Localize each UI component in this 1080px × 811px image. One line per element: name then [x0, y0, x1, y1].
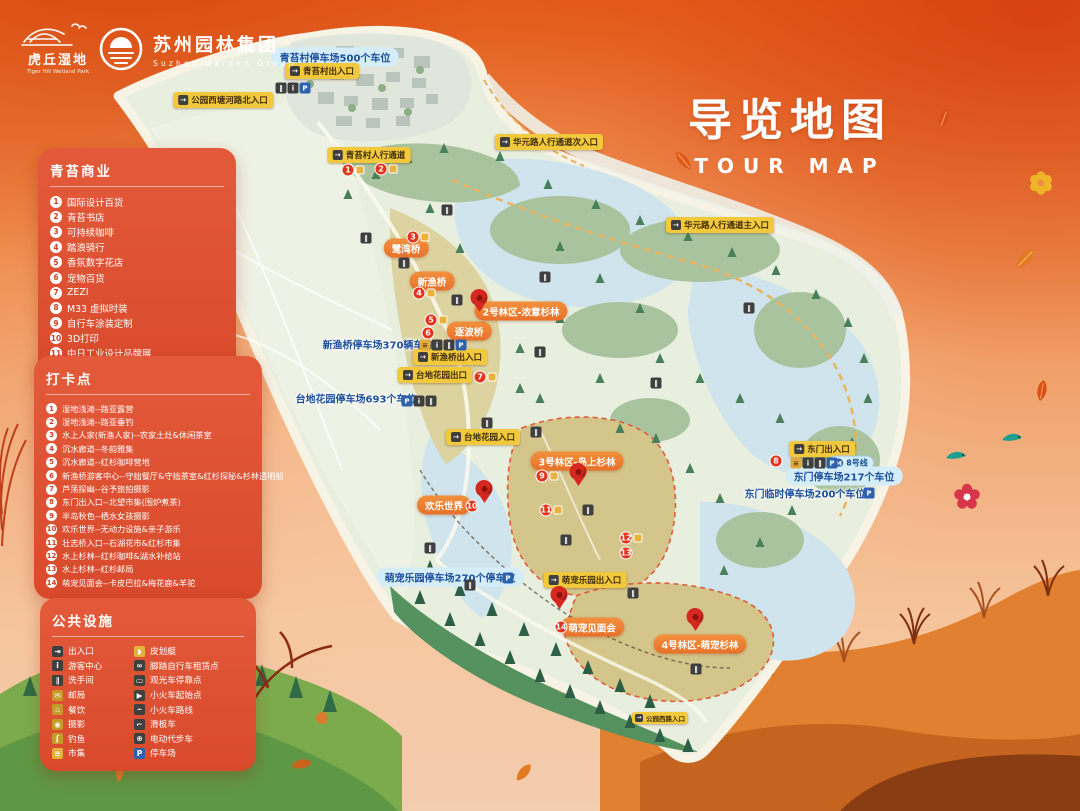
divider: [50, 186, 224, 187]
facility-item: ▶小火车起始点: [134, 688, 219, 703]
item-number-badge: 10: [50, 332, 62, 344]
checkin-list-item: 13水上杉林--红杉邮局: [46, 563, 250, 576]
facility-item: ∥洗手间: [52, 673, 126, 688]
facility-label: 摄影: [68, 718, 85, 730]
facility-label: 电动代步车: [150, 733, 193, 745]
train-route-icon: ┅: [134, 704, 145, 715]
checkin-list-item: 2湿地浅滩--路亚垂钓: [46, 415, 250, 428]
facilities-panel: 公共设施 ⇥出入口i游客中心∥洗手间✉邮局♨餐饮◉摄影ʃ钓鱼≡市集 ◗皮划艇∞脚…: [40, 598, 256, 771]
group-logo-name: 苏州园林集团: [153, 31, 296, 57]
shop-list-item: 103D打印: [50, 331, 224, 346]
shop-list-item: 1国际设计百货: [50, 194, 224, 209]
checkin-spots-panel: 打卡点 1湿地浅滩--路亚露营2湿地浅滩--路亚垂钓3水上人家(新渔人家)--农…: [34, 356, 262, 599]
facility-item: ⇥出入口: [52, 644, 126, 659]
facility-label: 钓鱼: [68, 733, 85, 745]
item-label: 水上人家(新渔人家)--农家土灶&休闲茶室: [62, 429, 212, 441]
item-number-badge: 7: [50, 287, 62, 299]
checkins-panel-title: 打卡点: [46, 368, 250, 388]
checkin-list-item: 9半岛秋色--栖水女孩摄影: [46, 509, 250, 522]
scooter-icon: ⌐: [134, 719, 145, 730]
shops-list: 1国际设计百货2青苔书店3可持续咖啡4踏浪骑行5香氛数字花店6宠物百货7ZEZI…: [50, 194, 224, 376]
checkin-list-item: 8东门出入口--北望市集(围炉煮茶): [46, 496, 250, 509]
parking-icon: P: [134, 748, 145, 759]
shop-list-item: 9自行车涂装定制: [50, 316, 224, 331]
item-label: 芦荡探幽--谷予旅拍摄影: [62, 483, 150, 495]
sightseeing-bus-stop-icon: ▭: [134, 675, 145, 686]
item-label: 壮志桥入口--石湖花市&红杉市集: [62, 537, 181, 549]
checkins-list: 1湿地浅滩--路亚露营2湿地浅滩--路亚垂钓3水上人家(新渔人家)--农家土灶&…: [46, 402, 250, 589]
item-label: M33 虚拟时装: [67, 301, 128, 315]
item-number-badge: 2: [50, 211, 62, 223]
facility-item: ◗皮划艇: [134, 644, 219, 659]
facility-label: 停车场: [150, 747, 176, 759]
dining-icon: ♨: [52, 704, 63, 715]
facility-label: 邮局: [68, 689, 85, 701]
item-number-badge: 5: [46, 457, 57, 468]
item-label: 宠物百货: [67, 271, 105, 285]
shop-list-item: 7ZEZI: [50, 285, 224, 300]
facility-item: ʃ钓鱼: [52, 732, 126, 747]
item-number-badge: 4: [46, 443, 57, 454]
item-label: 沉水廊道--冬韵雅集: [62, 443, 133, 455]
facility-label: 小火车起始点: [150, 689, 202, 701]
facility-item: ⊕电动代步车: [134, 732, 219, 747]
item-label: 湿地浅滩--路亚露营: [62, 403, 133, 415]
island-forest-zone: [508, 417, 676, 597]
checkin-list-item: 11壮志桥入口--石湖花市&红杉市集: [46, 536, 250, 549]
mobility-cart-icon: ⊕: [134, 733, 145, 744]
title-chinese: 导览地图: [652, 84, 928, 148]
market-icon: ≡: [52, 748, 63, 759]
item-label: 香氛数字花店: [67, 255, 123, 269]
item-number-badge: 1: [50, 196, 62, 208]
facilities-panel-title: 公共设施: [52, 610, 244, 630]
divider: [46, 394, 250, 395]
item-number-badge: 14: [46, 577, 57, 588]
item-number-badge: 5: [50, 256, 62, 268]
photography-icon: ◉: [52, 719, 63, 730]
facility-label: 洗手间: [68, 674, 94, 686]
group-logo-subtitle: Suzhou Garden Group: [153, 59, 296, 68]
item-label: 水上杉林--红杉咖啡&湖水补给站: [62, 550, 181, 562]
item-number-badge: 3: [50, 226, 62, 238]
page-title: 导览地图 TOUR MAP: [652, 84, 928, 178]
checkin-list-item: 14萌宠见面会--卡皮巴拉&梅花鹿&羊驼: [46, 576, 250, 589]
title-english: TOUR MAP: [652, 154, 928, 178]
facility-item: ⌐滑板车: [134, 717, 219, 732]
item-label: 国际设计百货: [67, 195, 123, 209]
facility-item: ┅小火车路线: [134, 702, 219, 717]
item-label: 可持续咖啡: [67, 225, 114, 239]
shop-list-item: 4踏浪骑行: [50, 240, 224, 255]
facility-item: P停车场: [134, 746, 219, 761]
post-office-icon: ✉: [52, 690, 63, 701]
checkin-list-item: 1湿地浅滩--路亚露营: [46, 402, 250, 415]
visitor-center-icon: i: [52, 660, 63, 671]
park-logo-subtitle: Tiger Hill Wetland Park: [20, 69, 96, 75]
shop-list-item: 2青苔书店: [50, 209, 224, 224]
park-logo-name: 虎丘湿地: [20, 49, 96, 68]
item-number-badge: 1: [46, 403, 57, 414]
item-label: 半岛秋色--栖水女孩摄影: [62, 510, 150, 522]
checkin-list-item: 10欢乐世界--无动力设施&亲子游乐: [46, 523, 250, 536]
entrance-icon: ⇥: [52, 646, 63, 657]
item-label: 3D打印: [67, 331, 99, 345]
item-label: 欢乐世界--无动力设施&亲子游乐: [62, 523, 181, 535]
item-number-badge: 12: [46, 550, 57, 561]
item-number-badge: 8: [50, 302, 62, 314]
item-number-badge: 6: [46, 470, 57, 481]
item-label: 青苔书店: [67, 210, 105, 224]
item-number-badge: 4: [50, 241, 62, 253]
item-number-badge: 2: [46, 417, 57, 428]
checkin-list-item: 3水上人家(新渔人家)--农家土灶&休闲茶室: [46, 429, 250, 442]
facility-label: 小火车路线: [150, 704, 193, 716]
checkin-list-item: 12水上杉林--红杉咖啡&湖水补给站: [46, 549, 250, 562]
shop-list-item: 8M33 虚拟时装: [50, 300, 224, 315]
item-number-badge: 11: [46, 537, 57, 548]
item-label: ZEZI: [67, 287, 89, 298]
facilities-list-right: ◗皮划艇∞脚踏自行车租赁点▭观光车停靠点▶小火车起始点┅小火车路线⌐滑板车⊕电动…: [134, 644, 219, 761]
facility-label: 脚踏自行车租赁点: [150, 660, 219, 672]
shop-list-item: 6宠物百货: [50, 270, 224, 285]
shops-legend-panel: 青苔商业 1国际设计百货2青苔书店3可持续咖啡4踏浪骑行5香氛数字花店6宠物百货…: [38, 148, 236, 386]
facility-item: ♨餐饮: [52, 702, 126, 717]
divider: [52, 636, 244, 637]
checkin-list-item: 7芦荡探幽--谷予旅拍摄影: [46, 482, 250, 495]
facility-label: 观光车停靠点: [150, 674, 202, 686]
checkin-list-item: 4沉水廊道--冬韵雅集: [46, 442, 250, 455]
item-number-badge: 3: [46, 430, 57, 441]
item-number-badge: 7: [46, 484, 57, 495]
item-label: 湿地浅滩--路亚垂钓: [62, 416, 133, 428]
restroom-icon: ∥: [52, 675, 63, 686]
item-number-badge: 10: [46, 524, 57, 535]
checkin-list-item: 5沉水廊道--红杉咖啡营地: [46, 456, 250, 469]
fishing-icon: ʃ: [52, 733, 63, 744]
shops-panel-title: 青苔商业: [50, 160, 224, 180]
facility-label: 游客中心: [68, 660, 102, 672]
kayak-icon: ◗: [134, 646, 145, 657]
facility-label: 市集: [68, 747, 85, 759]
facility-label: 餐饮: [68, 704, 85, 716]
facility-item: ≡市集: [52, 746, 126, 761]
item-label: 东门出入口--北望市集(围炉煮茶): [62, 496, 181, 508]
item-number-badge: 6: [50, 272, 62, 284]
item-number-badge: 9: [46, 510, 57, 521]
facility-item: ✉邮局: [52, 688, 126, 703]
facility-label: 皮划艇: [150, 645, 176, 657]
item-label: 水上杉林--红杉邮局: [62, 563, 133, 575]
item-number-badge: 13: [46, 564, 57, 575]
tour-map-poster: N 青苔村停车场500个车位→青苔村出入口→公园西塘河路北入口→青苔村人行通道→…: [0, 0, 1080, 811]
item-label: 新渔桥游客中心--守拙餐厅&守拙茶室&红杉探秘&杉林透明船: [62, 470, 284, 482]
park-logo: 虎丘湿地 Tiger Hill Wetland Park: [20, 18, 96, 75]
facility-item: i游客中心: [52, 659, 126, 674]
facility-item: ▭观光车停靠点: [134, 673, 219, 688]
item-label: 踏浪骑行: [67, 240, 105, 254]
item-number-badge: 9: [50, 317, 62, 329]
facility-label: 出入口: [68, 645, 94, 657]
park-logo-art-icon: [20, 18, 90, 48]
facilities-list-left: ⇥出入口i游客中心∥洗手间✉邮局♨餐饮◉摄影ʃ钓鱼≡市集: [52, 644, 126, 761]
facility-label: 滑板车: [150, 718, 176, 730]
group-logo: 苏州园林集团 Suzhou Garden Group: [98, 26, 296, 72]
group-logo-icon: [98, 26, 144, 72]
shop-list-item: 5香氛数字花店: [50, 255, 224, 270]
checkin-list-item: 6新渔桥游客中心--守拙餐厅&守拙茶室&红杉探秘&杉林透明船: [46, 469, 250, 482]
item-label: 沉水廊道--红杉咖啡营地: [62, 456, 150, 468]
item-number-badge: 8: [46, 497, 57, 508]
item-label: 萌宠见面会--卡皮巴拉&梅花鹿&羊驼: [62, 577, 195, 589]
shop-list-item: 3可持续咖啡: [50, 224, 224, 239]
train-start-icon: ▶: [134, 690, 145, 701]
item-label: 自行车涂装定制: [67, 316, 133, 330]
bike-rental-icon: ∞: [134, 660, 145, 671]
facility-item: ◉摄影: [52, 717, 126, 732]
facility-item: ∞脚踏自行车租赁点: [134, 659, 219, 674]
